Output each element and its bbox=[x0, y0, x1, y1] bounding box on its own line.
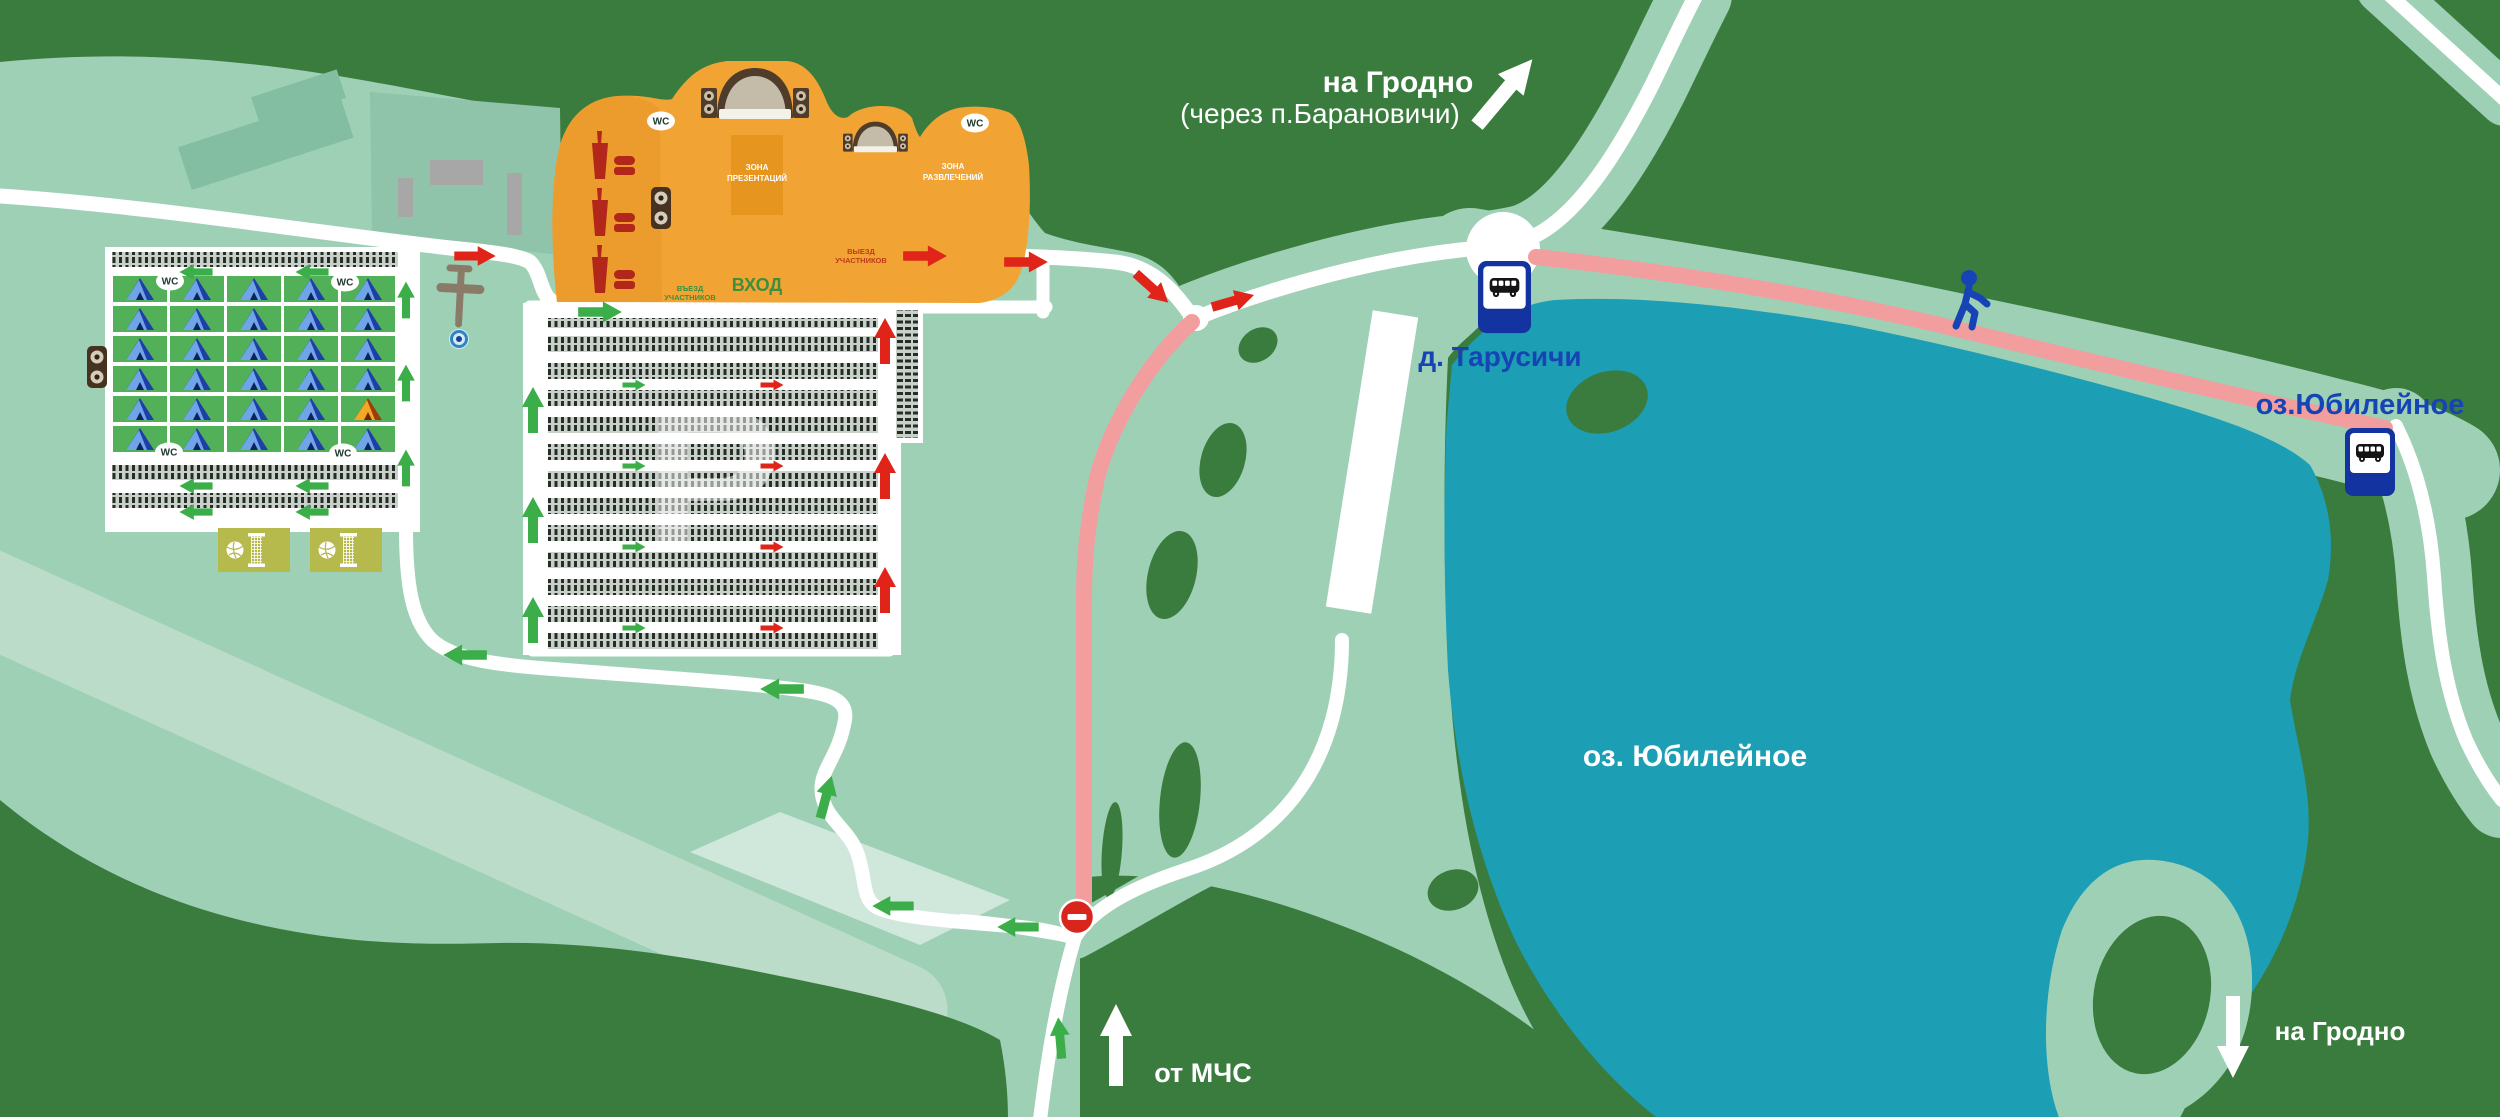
volleyball-court-icon bbox=[310, 528, 382, 572]
entrance-label: ВХОД bbox=[732, 275, 783, 295]
building bbox=[507, 173, 522, 235]
presentation-zone-label2: ПРЕЗЕНТАЦИЙ bbox=[727, 174, 787, 183]
wc-badge: WC bbox=[335, 449, 352, 460]
lake-name-label: оз. Юбилейное bbox=[1583, 740, 1807, 773]
parking-row bbox=[548, 633, 878, 649]
speaker-icon bbox=[651, 187, 671, 229]
bus-stop-icon bbox=[1478, 261, 1531, 333]
viewpoint-icon bbox=[449, 329, 469, 349]
camp-parking-strip bbox=[112, 465, 398, 480]
no-entry-icon bbox=[1060, 900, 1094, 934]
volleyball-court-icon bbox=[218, 528, 290, 572]
route-label-grodno-bottom: на Гродно bbox=[2275, 1016, 2406, 1046]
wc-badge: WC bbox=[967, 119, 984, 130]
parking-row bbox=[548, 606, 878, 622]
participants-entry-label2: УЧАСТНИКОВ bbox=[664, 293, 716, 302]
building bbox=[398, 178, 413, 217]
bus-parking-strip bbox=[896, 310, 918, 438]
participants-exit-label2: УЧАСТНИКОВ bbox=[835, 256, 887, 265]
camp-parking-strip bbox=[112, 493, 398, 508]
wc-badge: WC bbox=[161, 448, 178, 459]
parking-row bbox=[548, 336, 878, 352]
route-label-grodno-top2: (через п.Барановичи) bbox=[1180, 98, 1460, 129]
wc-badge: WC bbox=[162, 277, 179, 288]
entertainment-zone-label2: РАЗВЛЕЧЕНИЙ bbox=[923, 173, 983, 182]
camp-parking-strip bbox=[112, 252, 398, 267]
building bbox=[430, 160, 483, 185]
food-court-strip bbox=[552, 96, 662, 302]
wc-badge: WC bbox=[337, 278, 354, 289]
festival-site-map: ЗОНА ПРЕЗЕНТАЦИЙ ЗОНА РАЗВЛЕЧЕНИЙ ВХОД В… bbox=[0, 0, 2500, 1117]
lake-stop-label: оз.Юбилейное bbox=[2256, 389, 2465, 421]
entertainment-zone-label: ЗОНА bbox=[942, 162, 965, 171]
village-stop-label: д. Тарусичи bbox=[1418, 341, 1581, 372]
parking-row bbox=[548, 318, 878, 328]
route-label-grodno-top: на Гродно bbox=[1323, 66, 1474, 99]
bus-stop-icon bbox=[2345, 428, 2395, 496]
wc-badge: WC bbox=[653, 117, 670, 128]
route-label-mchs: от МЧС bbox=[1154, 1058, 1252, 1088]
participants-entry-label: ВЪЕЗД bbox=[677, 284, 704, 293]
parking-letter: Р bbox=[645, 366, 782, 595]
speaker-icon bbox=[87, 346, 107, 388]
map-canvas: ЗОНА ПРЕЗЕНТАЦИЙ ЗОНА РАЗВЛЕЧЕНИЙ ВХОД В… bbox=[0, 0, 2500, 1117]
participants-exit-label: ВЫЕЗД bbox=[847, 247, 875, 256]
presentation-zone-label: ЗОНА bbox=[746, 163, 769, 172]
